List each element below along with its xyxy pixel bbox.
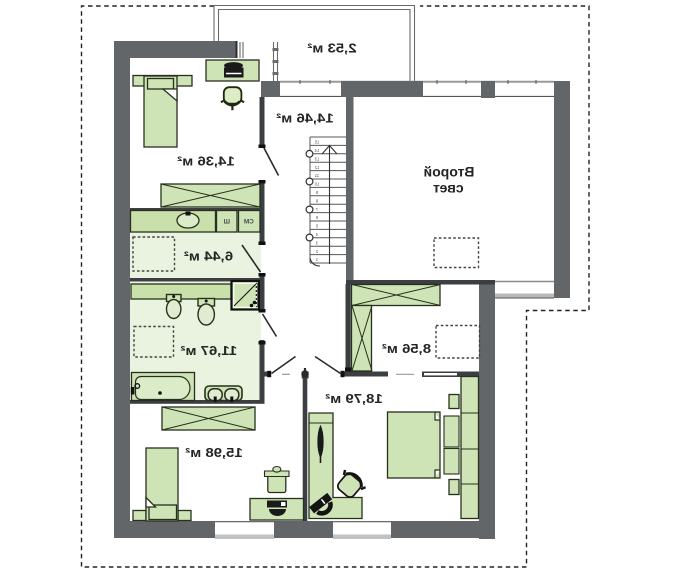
svg-text:Второй: Второй <box>424 164 475 180</box>
svg-text:14,36 м²: 14,36 м² <box>177 154 235 169</box>
svg-text:15: 15 <box>314 140 319 145</box>
svg-text:11,67 м²: 11,67 м² <box>180 343 237 358</box>
svg-text:18,79 м²: 18,79 м² <box>325 391 383 406</box>
svg-text:15,98 м²: 15,98 м² <box>185 445 243 460</box>
svg-text:Ш: Ш <box>224 219 230 226</box>
svg-text:10: 10 <box>314 182 319 187</box>
svg-text:6,44 м²: 6,44 м² <box>184 248 233 263</box>
svg-text:11: 11 <box>314 173 319 178</box>
svg-text:свет: свет <box>433 180 464 196</box>
svg-text:14: 14 <box>314 148 319 153</box>
svg-text:14,46 м²: 14,46 м² <box>276 110 334 125</box>
svg-text:8,56 м²: 8,56 м² <box>382 341 431 356</box>
svg-text:12: 12 <box>314 165 319 170</box>
svg-text:2,53 м²: 2,53 м² <box>307 40 356 55</box>
svg-text:СМ: СМ <box>244 219 254 226</box>
svg-text:13: 13 <box>314 156 319 161</box>
